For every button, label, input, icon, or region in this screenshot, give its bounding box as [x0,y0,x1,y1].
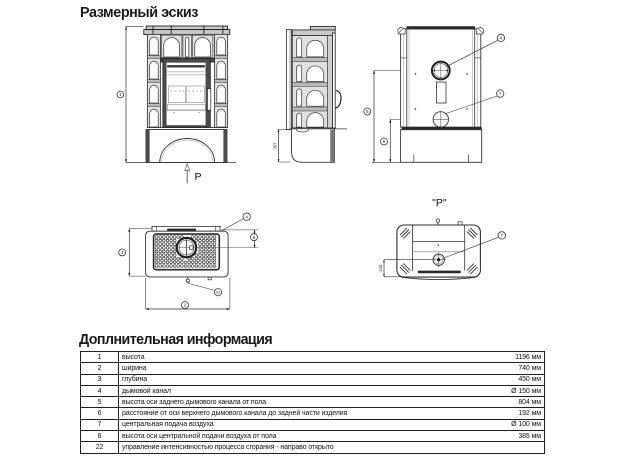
svg-text:6: 6 [253,235,256,240]
svg-text:7: 7 [499,91,502,96]
svg-text:5: 5 [366,109,369,114]
svg-text:P: P [195,171,202,183]
svg-text:2: 2 [184,303,187,308]
svg-text:145: 145 [378,264,383,272]
svg-text:22: 22 [216,290,221,295]
svg-text:4: 4 [500,36,503,41]
svg-text:3: 3 [121,250,124,255]
svg-text:8: 8 [383,139,386,144]
svg-text:1: 1 [119,92,122,97]
svg-text:4: 4 [245,214,248,219]
svg-text:7: 7 [501,233,504,238]
svg-text:"P": "P" [432,197,447,209]
svg-text:267: 267 [273,142,278,150]
